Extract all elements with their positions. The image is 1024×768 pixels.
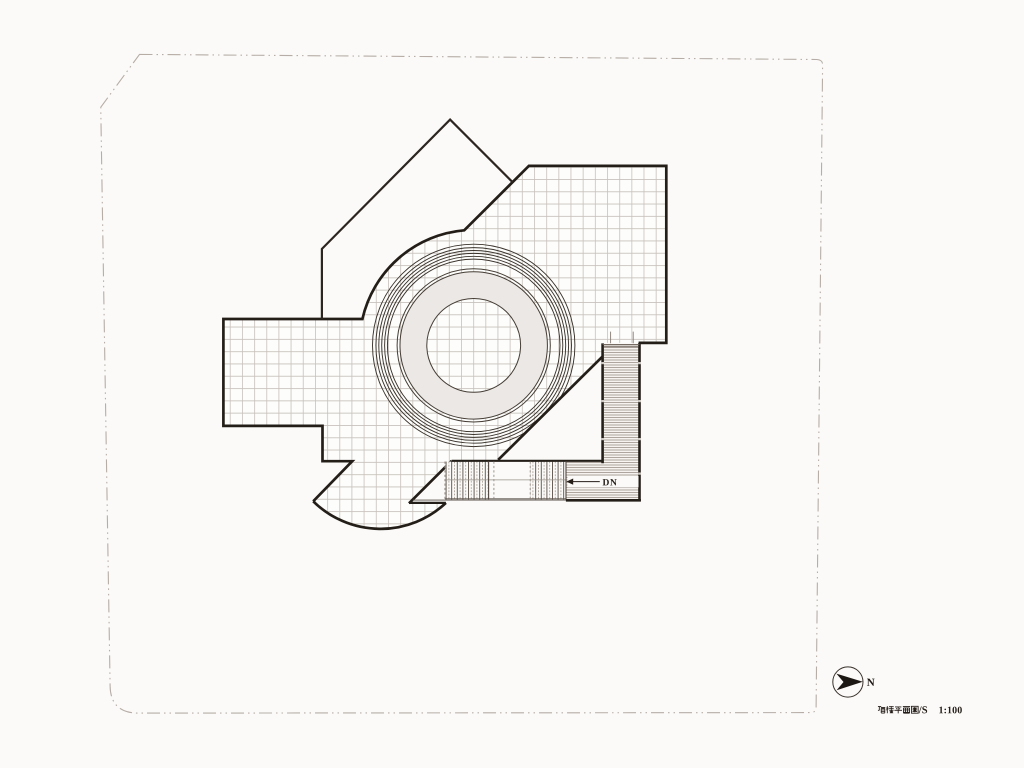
svg-text:DN: DN: [602, 478, 617, 488]
svg-text:1:100: 1:100: [938, 705, 962, 716]
svg-text:/S: /S: [918, 705, 928, 716]
svg-text:N: N: [867, 677, 875, 689]
